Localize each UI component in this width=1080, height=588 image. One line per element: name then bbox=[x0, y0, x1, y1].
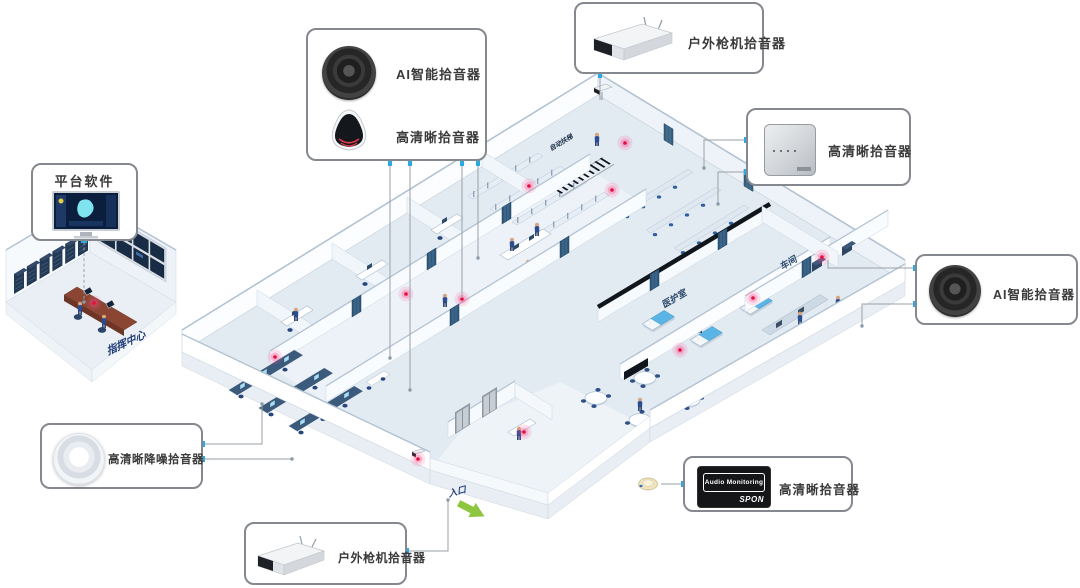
noise-reduction-device-image bbox=[53, 433, 105, 485]
outdoor-gun-top-label: 户外枪机拾音器 bbox=[688, 33, 786, 52]
noise-reduction-label: 高清晰降噪拾音器 bbox=[108, 451, 204, 467]
entrance-arrow bbox=[455, 496, 488, 523]
hd-panel-label: 高清晰拾音器 bbox=[828, 141, 912, 160]
hd-cone-device-image bbox=[323, 108, 375, 154]
callout-hd-audio-monitoring: Audio Monitoring SPON 高清晰拾音器 bbox=[683, 456, 853, 512]
callout-platform-software: 平台软件 bbox=[31, 163, 138, 241]
spon-brand-text: SPON bbox=[739, 495, 764, 504]
callout-ai-and-hd-pickups: AI智能拾音器 高清晰拾音器 bbox=[306, 28, 487, 161]
callout-hd-panel: 高清晰拾音器 bbox=[746, 108, 911, 186]
outdoor-gun-bottom-label: 户外枪机拾音器 bbox=[338, 549, 426, 566]
callout-ai-right: AI智能拾音器 bbox=[915, 254, 1078, 325]
platform-software-label: 平台软件 bbox=[33, 171, 136, 190]
callout-outdoor-gun-bottom: 户外枪机拾音器 bbox=[244, 522, 407, 585]
outdoor-gun-bottom-device-image bbox=[250, 530, 336, 582]
outdoor-gun-device-image bbox=[584, 12, 684, 68]
audio-monitoring-device-text: Audio Monitoring bbox=[703, 473, 765, 492]
ai-pickup-right-device-image bbox=[929, 265, 981, 317]
hd-audio-monitoring-label: 高清晰拾音器 bbox=[779, 479, 860, 498]
ai-pickup-label: AI智能拾音器 bbox=[396, 64, 481, 83]
desk-speaker-device bbox=[639, 478, 658, 490]
ai-pickup-device-image bbox=[322, 46, 376, 100]
hd-panel-device-image bbox=[764, 124, 816, 176]
audio-monitoring-device-image: Audio Monitoring SPON bbox=[697, 466, 771, 508]
solution-diagram-page: { "callouts": { "ai_smart_top": {"label"… bbox=[0, 0, 1080, 588]
ai-pickup-right-label: AI智能拾音器 bbox=[993, 284, 1075, 303]
callout-outdoor-gun-top: 户外枪机拾音器 bbox=[574, 2, 764, 74]
hd-cone-label: 高清晰拾音器 bbox=[396, 127, 480, 146]
platform-monitor-image bbox=[50, 189, 122, 239]
pickup-point-command bbox=[87, 296, 102, 311]
callout-hd-noise-reduction: 高清晰降噪拾音器 bbox=[40, 423, 203, 489]
